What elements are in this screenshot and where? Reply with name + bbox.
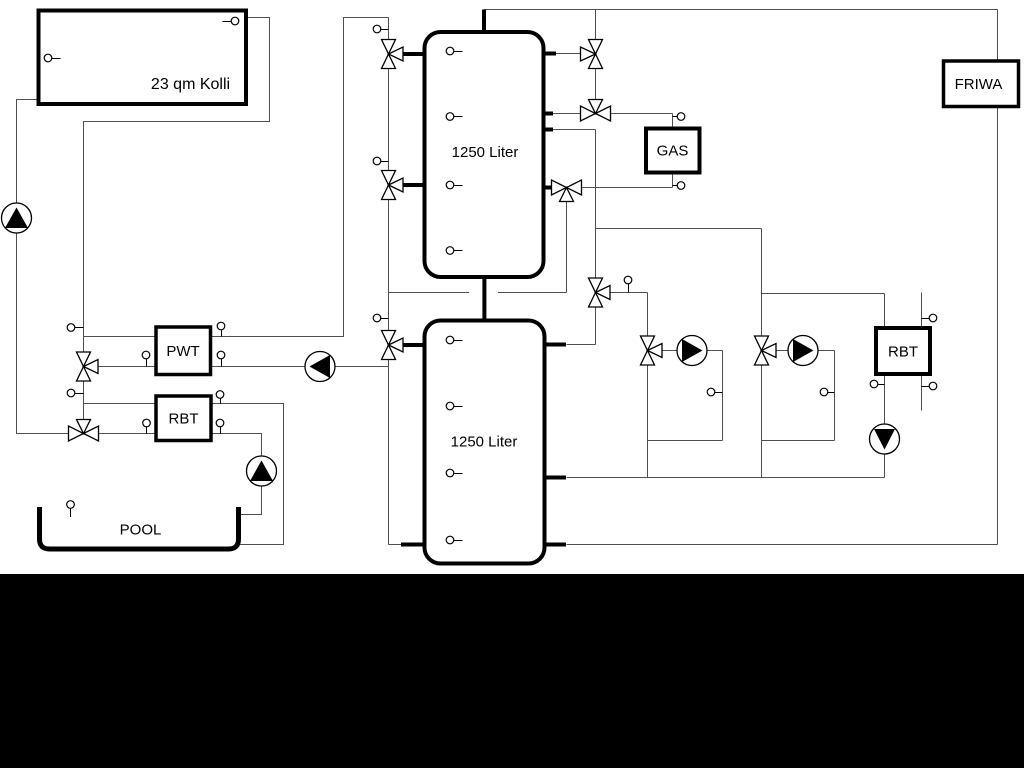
svg-text:RBT: RBT [169, 411, 199, 428]
svg-text:GAS: GAS [657, 143, 689, 160]
svg-text:POOL: POOL [120, 522, 162, 539]
svg-text:RBT: RBT [888, 344, 918, 361]
svg-text:23 qm Kolli: 23 qm Kolli [151, 76, 230, 93]
svg-text:1250 Liter: 1250 Liter [452, 144, 519, 161]
svg-text:PWT: PWT [166, 343, 199, 360]
svg-text:FRIWA: FRIWA [955, 76, 1003, 93]
svg-text:1250 Liter: 1250 Liter [451, 434, 518, 451]
